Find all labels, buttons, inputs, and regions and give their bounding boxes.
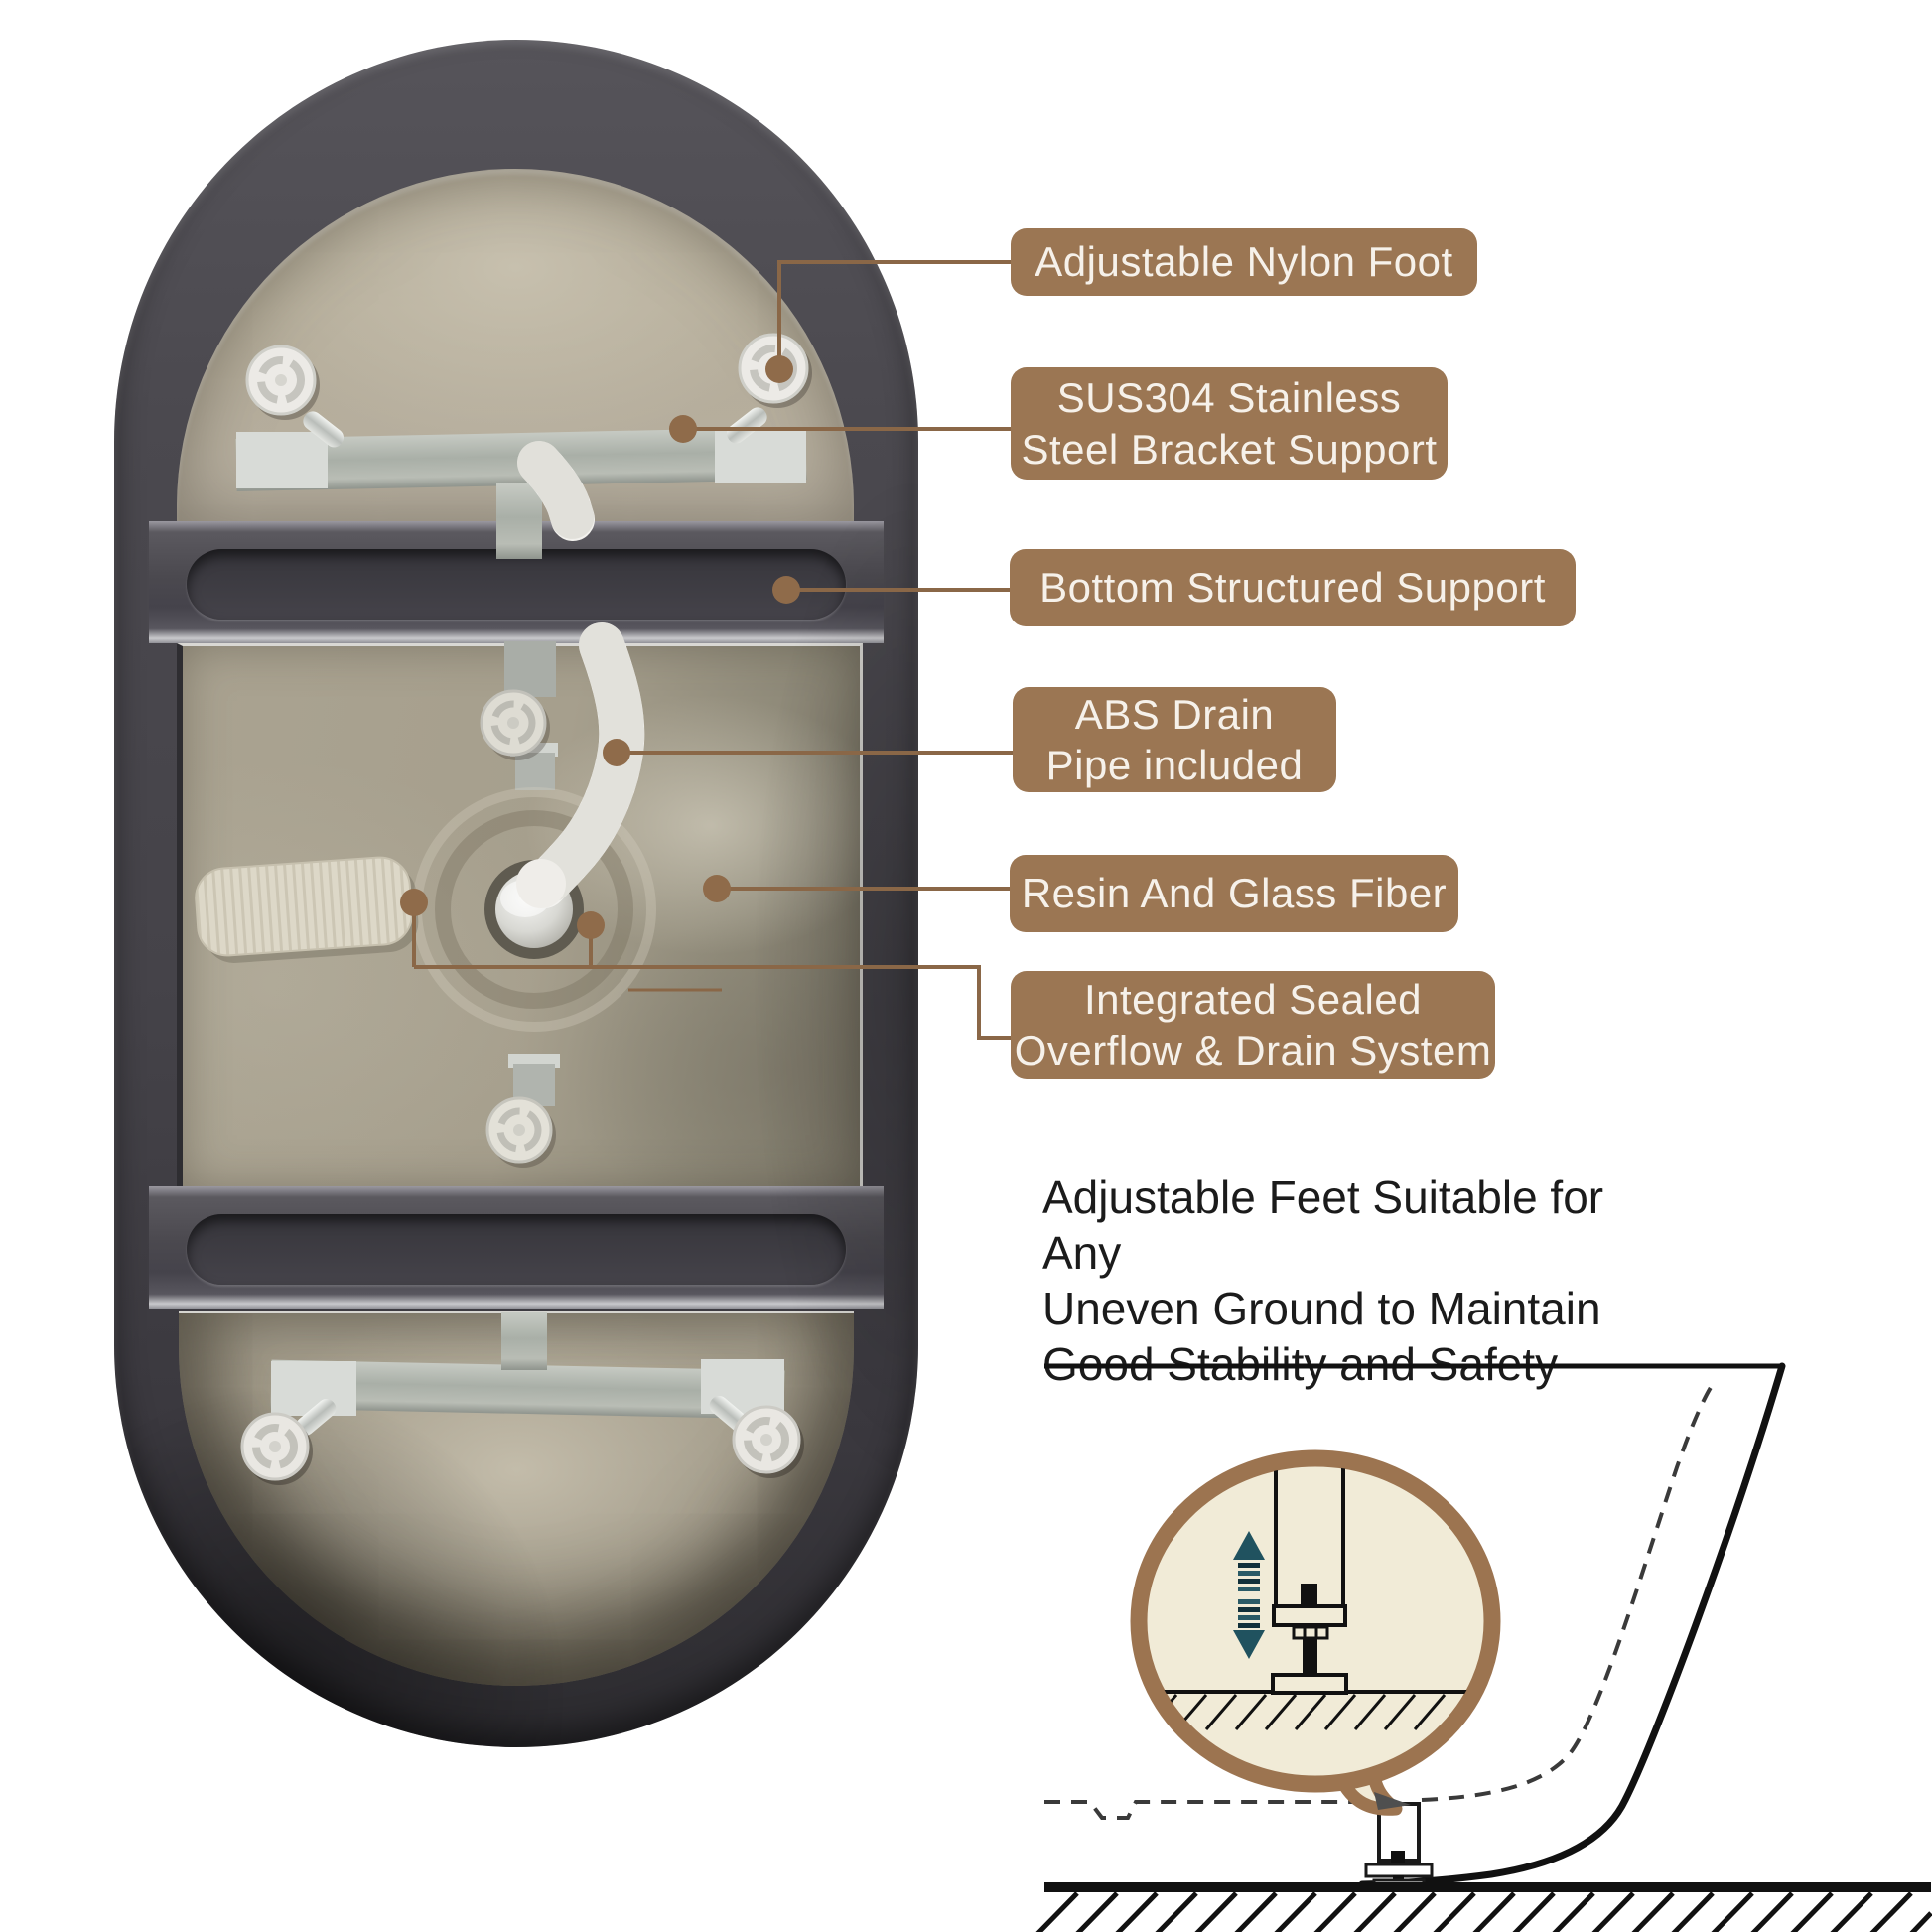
tub-profile-drawing [0, 0, 1932, 1932]
adjustable-foot-drawing [1366, 1804, 1432, 1889]
speech-bubble-icon [1139, 1449, 1492, 1810]
ground-hatching-icon [1037, 1893, 1931, 1932]
